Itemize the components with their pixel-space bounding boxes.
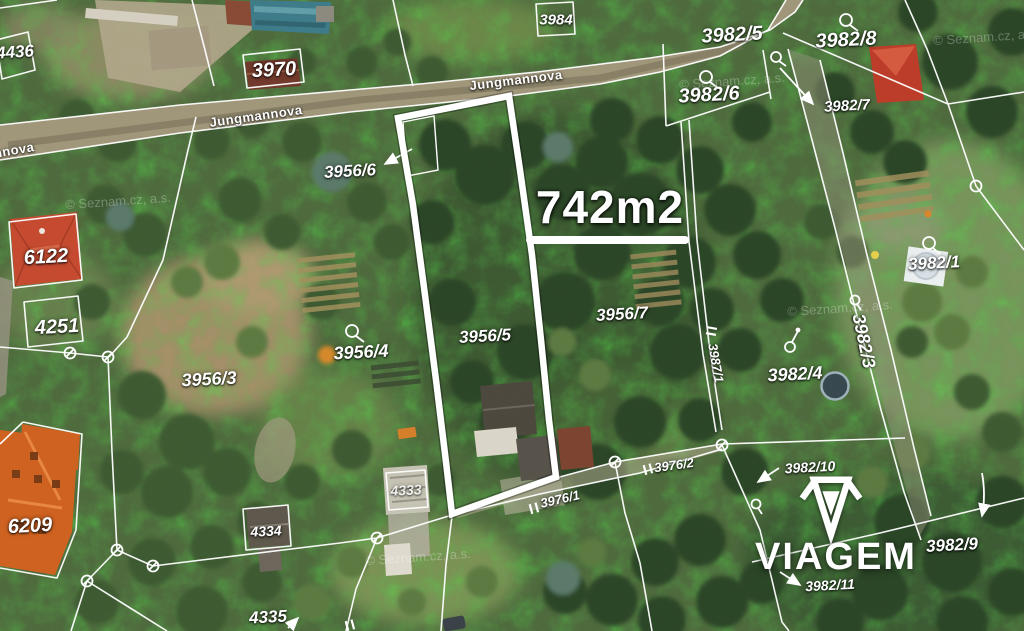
map-screenshot[interactable]: 742m2 VIAGEM JungmannovaJungmannovannova… [0,0,1024,631]
area-underline-bar [526,236,689,244]
aerial-canvas [0,0,1024,631]
